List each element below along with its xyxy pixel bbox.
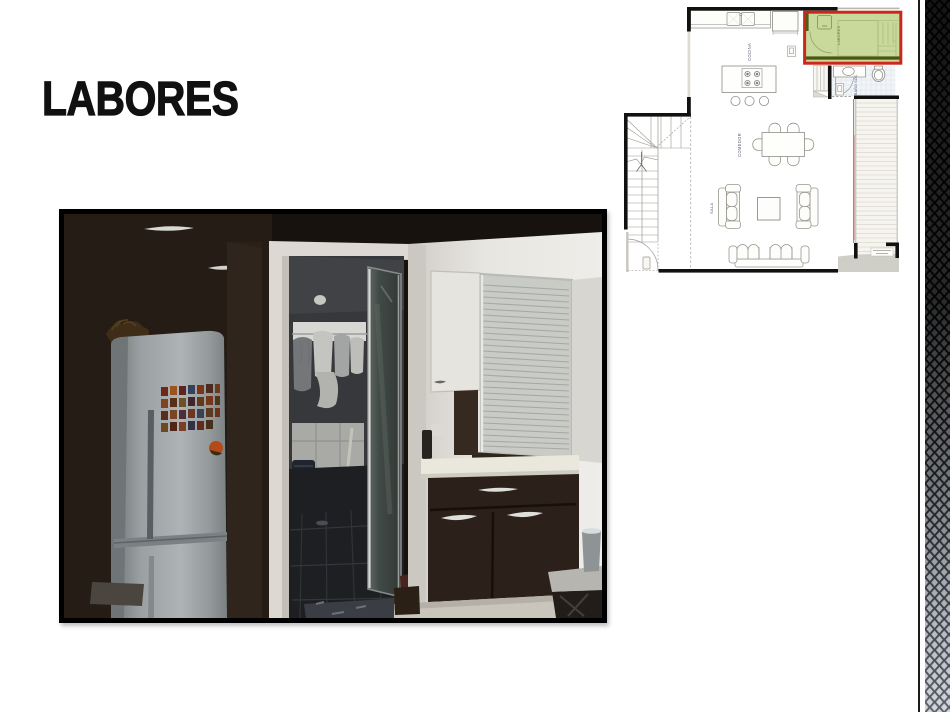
svg-text:SALA: SALA [709, 203, 714, 214]
svg-text:LABORES: LABORES [837, 25, 841, 45]
svg-text:COMEDOR: COMEDOR [737, 133, 742, 157]
svg-text:COCINA: COCINA [747, 43, 752, 61]
svg-text:BAÑO SOC: BAÑO SOC [853, 74, 858, 95]
